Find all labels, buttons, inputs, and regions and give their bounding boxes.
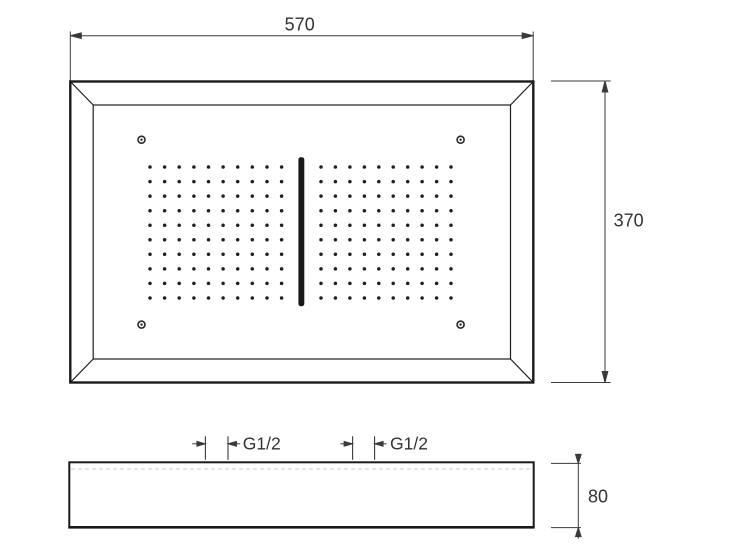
svg-text:G1/2: G1/2 (390, 434, 428, 454)
svg-text:370: 370 (614, 211, 644, 231)
svg-text:570: 570 (285, 15, 315, 35)
svg-text:G1/2: G1/2 (243, 434, 281, 454)
svg-text:80: 80 (588, 487, 608, 507)
